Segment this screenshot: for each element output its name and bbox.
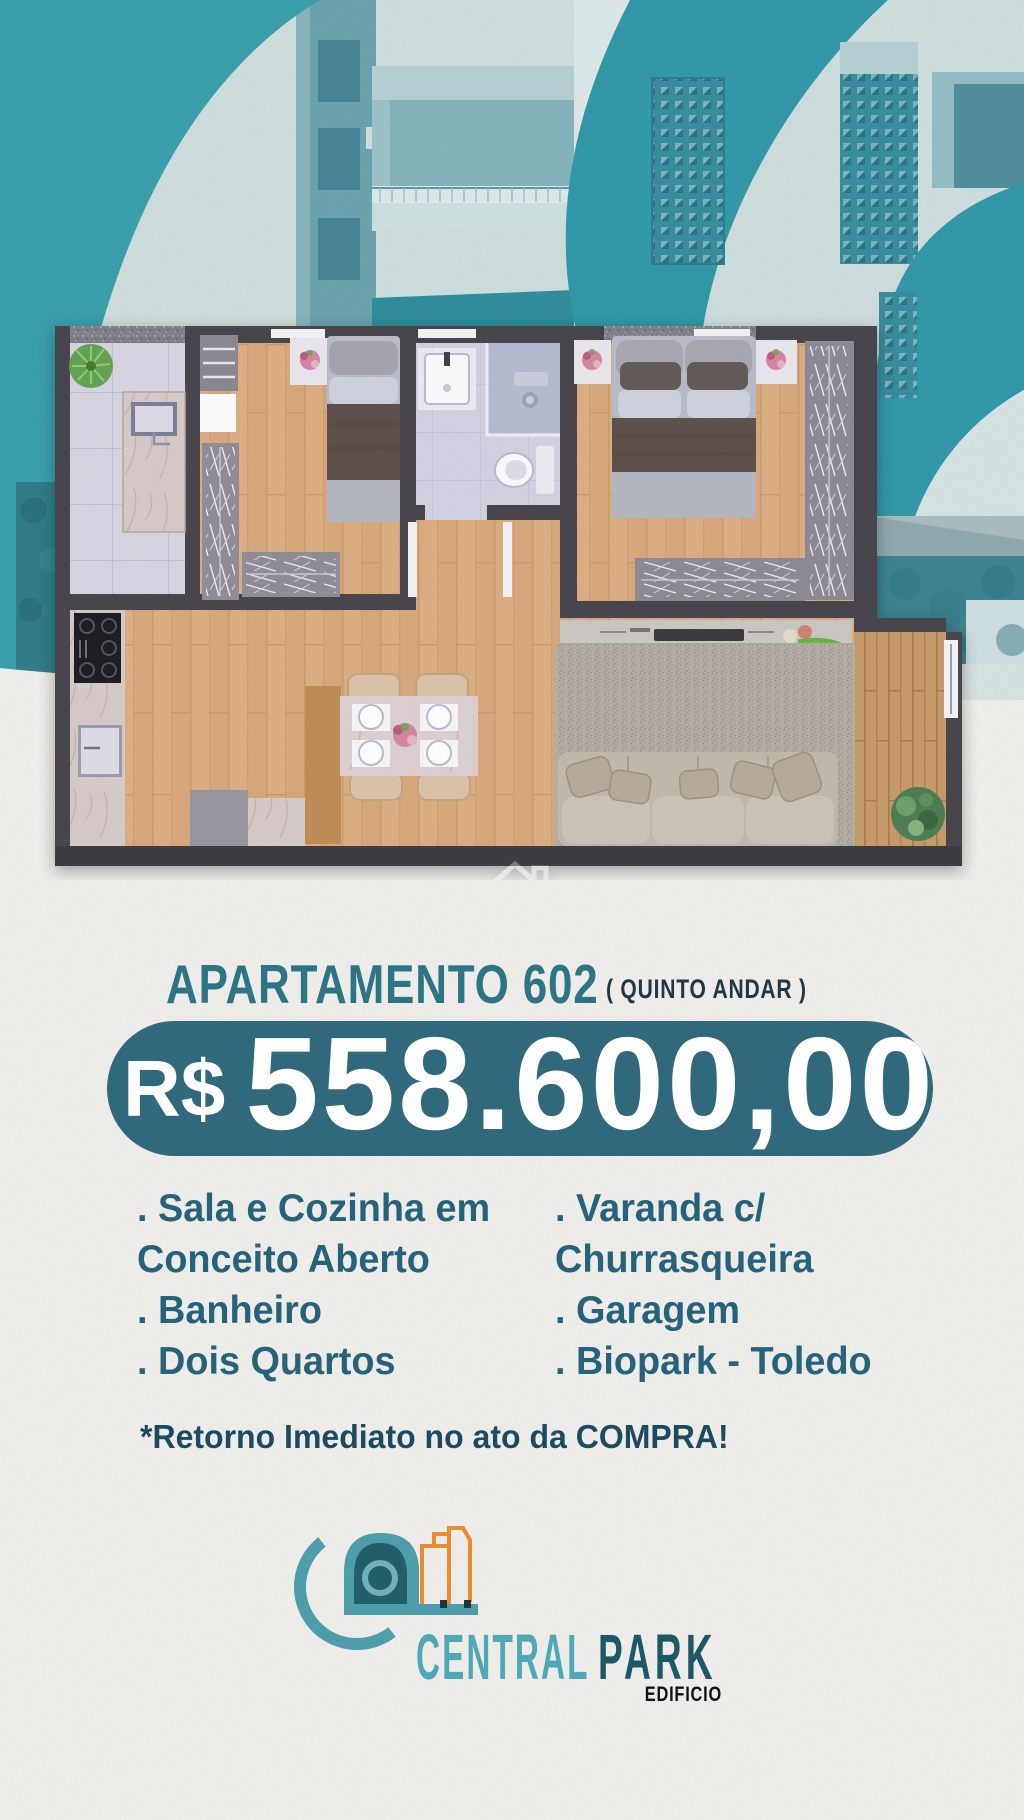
svg-text:EDIFICIO: EDIFICIO xyxy=(645,1682,722,1705)
svg-text:CENTRAL: CENTRAL xyxy=(416,1621,590,1693)
